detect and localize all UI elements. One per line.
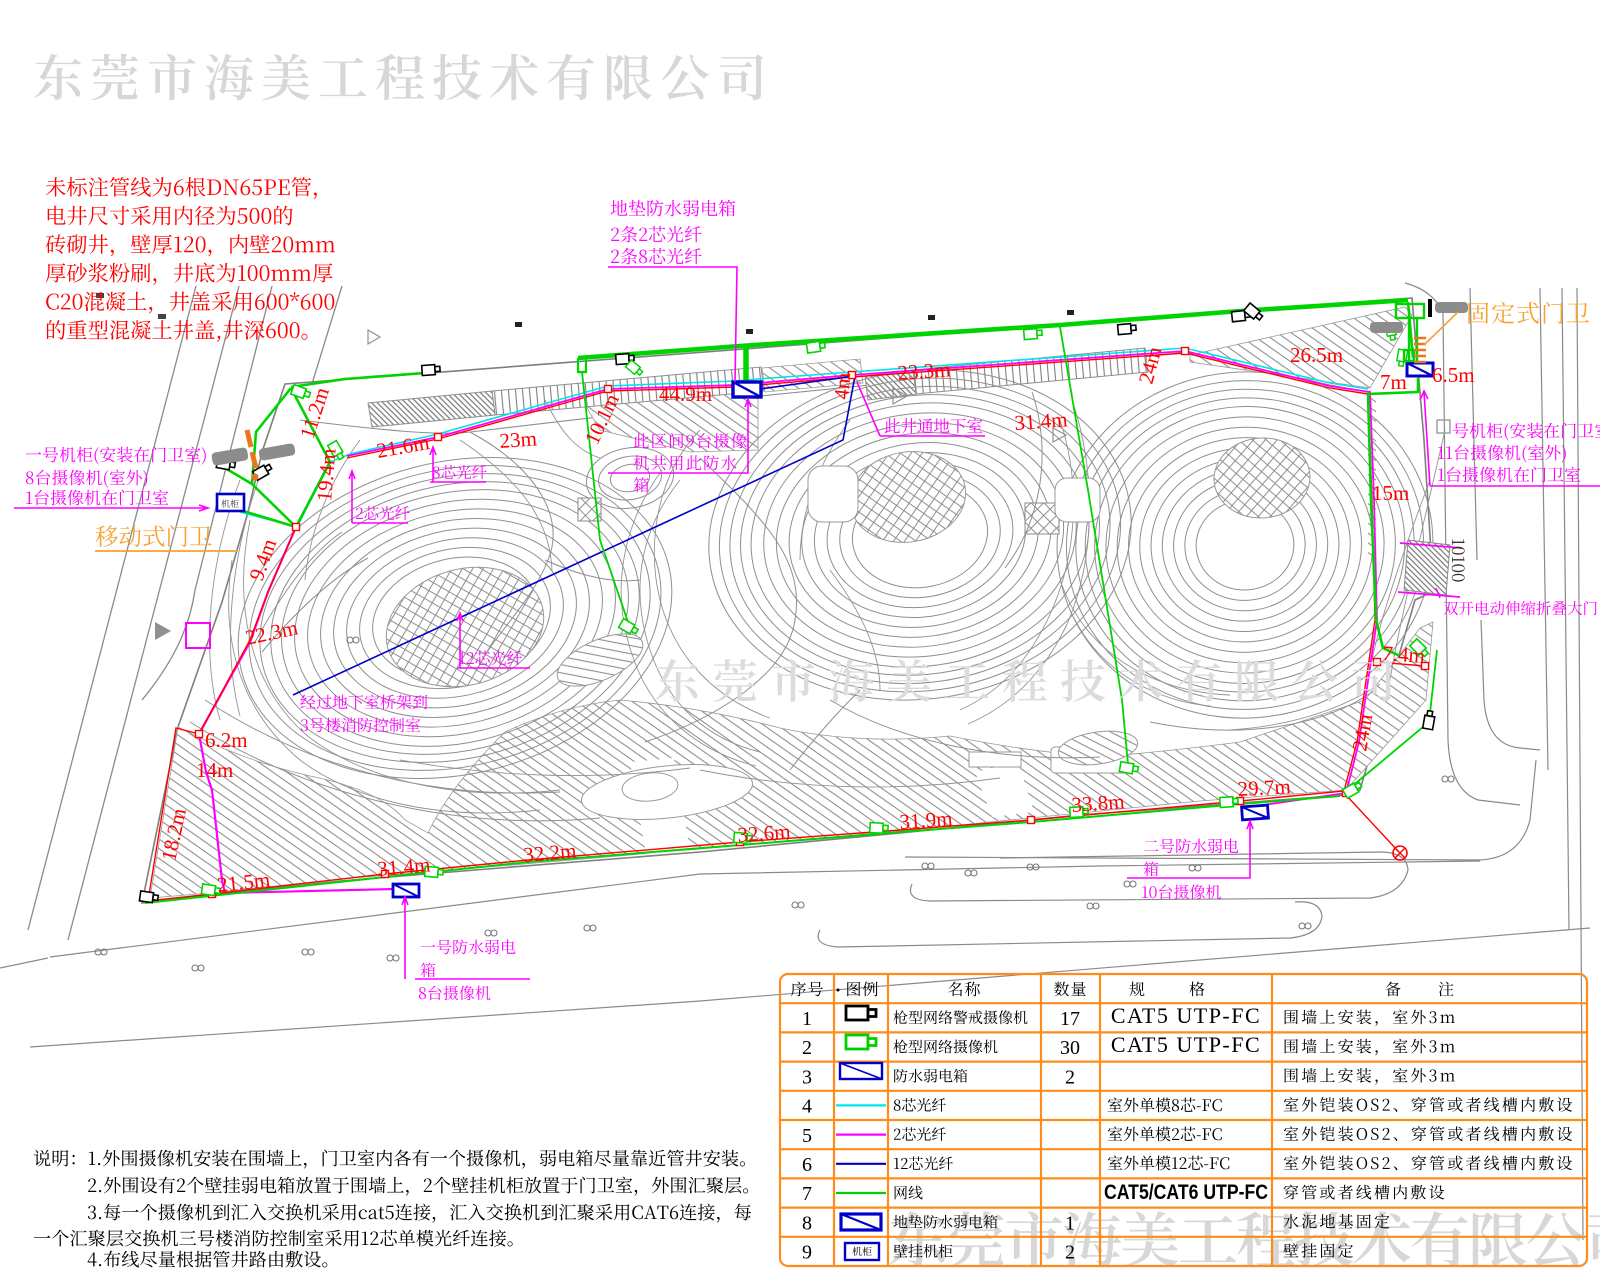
svg-text:6: 6 <box>802 1154 812 1176</box>
svg-text:1: 1 <box>802 1008 812 1030</box>
svg-text:CAT5/CAT6 UTP-FC: CAT5/CAT6 UTP-FC <box>1104 1181 1268 1204</box>
svg-text:15m: 15m <box>1372 481 1409 505</box>
svg-text:26.5m: 26.5m <box>1290 343 1343 367</box>
svg-text:2: 2 <box>1065 1242 1075 1264</box>
svg-text:5: 5 <box>802 1125 812 1147</box>
svg-text:9: 9 <box>802 1242 812 1264</box>
svg-text:19.4m: 19.4m <box>312 447 341 502</box>
svg-text:31.4m: 31.4m <box>376 852 431 881</box>
svg-text:2: 2 <box>802 1037 812 1059</box>
svg-text:32.6m: 32.6m <box>737 819 792 847</box>
svg-text:33.8m: 33.8m <box>1071 789 1126 817</box>
svg-text:23m: 23m <box>499 426 538 453</box>
svg-text:30: 30 <box>1060 1037 1080 1059</box>
svg-text:4m: 4m <box>829 372 855 401</box>
svg-text:CAT5 UTP-FC: CAT5 UTP-FC <box>1111 1032 1261 1057</box>
svg-text:6.5m: 6.5m <box>1432 363 1475 387</box>
svg-text:7m: 7m <box>1380 370 1407 394</box>
svg-text:3: 3 <box>802 1066 812 1088</box>
svg-text:31.4m: 31.4m <box>1014 407 1069 435</box>
svg-text:31.9m: 31.9m <box>899 806 954 834</box>
svg-text:CAT5 UTP-FC: CAT5 UTP-FC <box>1111 1003 1261 1028</box>
svg-text:8: 8 <box>802 1212 812 1234</box>
svg-text:17: 17 <box>1060 1008 1080 1030</box>
svg-text:44.9m: 44.9m <box>659 382 712 406</box>
svg-text:23.3m: 23.3m <box>897 357 952 385</box>
svg-text:14m: 14m <box>196 758 233 782</box>
svg-text:29.7m: 29.7m <box>1237 774 1291 801</box>
svg-text:6.2m: 6.2m <box>205 728 248 752</box>
svg-text:2: 2 <box>1065 1066 1075 1088</box>
svg-text:7: 7 <box>802 1183 812 1205</box>
svg-text:1: 1 <box>1065 1212 1075 1234</box>
svg-text:32.2m: 32.2m <box>522 838 577 867</box>
svg-text:4: 4 <box>802 1096 812 1118</box>
